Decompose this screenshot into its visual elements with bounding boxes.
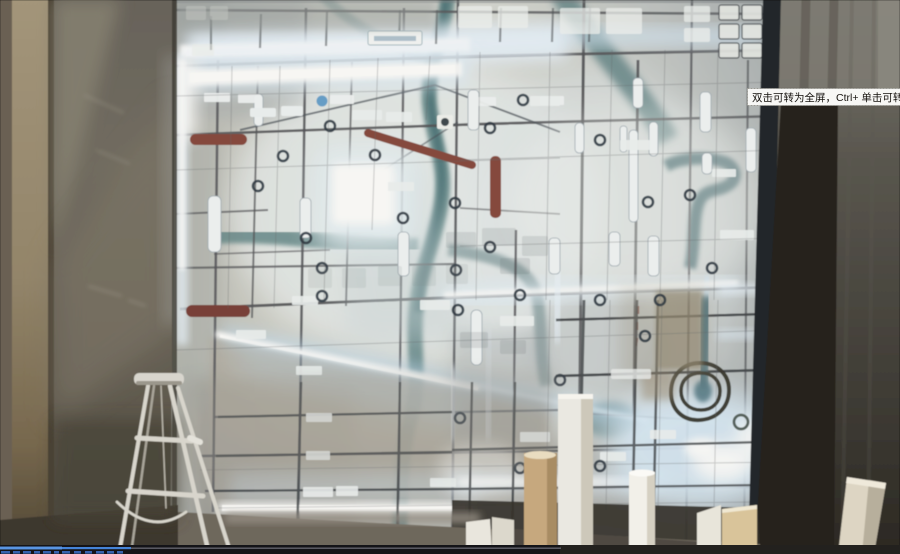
svg-text:双击可转为全屏，Ctrl+ 单击可转为: 双击可转为全屏，Ctrl+ 单击可转为 xyxy=(752,91,900,104)
